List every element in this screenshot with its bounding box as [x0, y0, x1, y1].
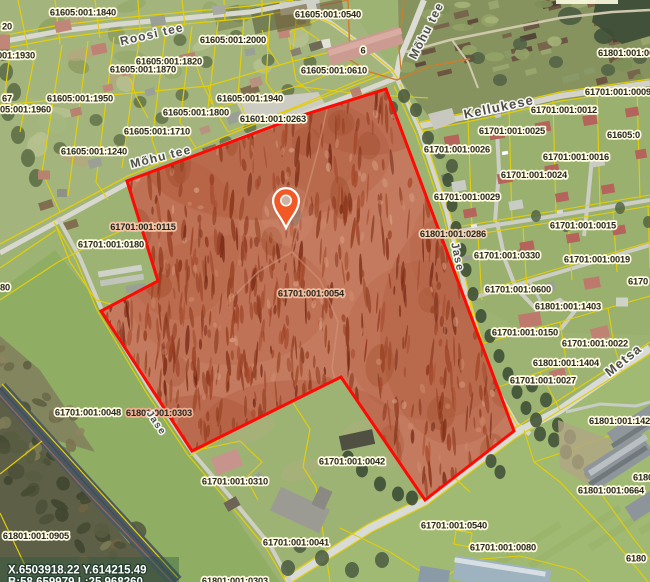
svg-text:61701:001:0540: 61701:001:0540 — [421, 520, 487, 530]
svg-text:61701:001:0080: 61701:001:0080 — [470, 542, 536, 552]
svg-text:61605:001:1940: 61605:001:1940 — [217, 93, 283, 103]
svg-text:6170: 6170 — [628, 276, 648, 286]
svg-text:61701:001:0026: 61701:001:0026 — [424, 144, 490, 154]
svg-text:61701:001:0180: 61701:001:0180 — [78, 239, 144, 249]
svg-text:61801:001:0012: 61801:001:0012 — [598, 48, 650, 58]
svg-text:61801:001:1403: 61801:001:1403 — [535, 301, 601, 311]
svg-text:61801:001:0303: 61801:001:0303 — [202, 576, 268, 582]
svg-text:B:58.659979 L:25.968260: B:58.659979 L:25.968260 — [8, 577, 143, 582]
svg-text:61801:001:0286: 61801:001:0286 — [420, 229, 486, 239]
svg-text:6180: 6180 — [626, 553, 646, 563]
svg-text:61801:001:0664: 61801:001:0664 — [578, 485, 645, 495]
svg-text:61701:001:0029: 61701:001:0029 — [434, 192, 500, 202]
svg-text:61701:001:0048: 61701:001:0048 — [55, 407, 121, 417]
svg-text:61801:001:142: 61801:001:142 — [589, 416, 650, 426]
svg-text:61701:001:0009: 61701:001:0009 — [585, 87, 650, 97]
svg-text:61801:001:0905: 61801:001:0905 — [3, 531, 69, 541]
svg-text:6: 6 — [360, 45, 365, 55]
svg-text:61701:001:0115: 61701:001:0115 — [110, 222, 176, 232]
svg-text:61605:001:2000: 61605:001:2000 — [200, 35, 266, 45]
svg-text:61605:001:0540: 61605:001:0540 — [295, 9, 361, 19]
svg-text:61605:001:1950: 61605:001:1950 — [47, 93, 113, 103]
svg-text:61605:001:1840: 61605:001:1840 — [50, 7, 116, 17]
svg-text:61605:0: 61605:0 — [607, 130, 640, 140]
svg-text:61701:001:0600: 61701:001:0600 — [485, 284, 551, 294]
svg-text:61701:001:0150: 61701:001:0150 — [492, 327, 558, 337]
svg-text:61701:001:0054: 61701:001:0054 — [278, 288, 345, 298]
svg-text:61605:001:0610: 61605:001:0610 — [301, 65, 367, 75]
svg-text:67: 67 — [2, 93, 12, 103]
svg-text:6180: 6180 — [633, 472, 650, 482]
svg-text:61605:001:1870: 61605:001:1870 — [110, 64, 176, 74]
svg-text:61701:001:0041: 61701:001:0041 — [263, 537, 329, 547]
svg-text:61701:001:0012: 61701:001:0012 — [531, 105, 597, 115]
svg-text:61701:001:0019: 61701:001:0019 — [564, 254, 630, 264]
svg-text:X.6503918.22 Y.614215.49: X.6503918.22 Y.614215.49 — [8, 565, 147, 577]
svg-text:61601:001:0263: 61601:001:0263 — [240, 114, 306, 124]
svg-text:61605:001:1930: 61605:001:1930 — [0, 50, 35, 60]
svg-text:61701:001:0330: 61701:001:0330 — [474, 250, 540, 260]
svg-text:61801:001:1404: 61801:001:1404 — [533, 358, 600, 368]
svg-text:61605:001:1960: 61605:001:1960 — [0, 104, 51, 114]
svg-text:61701:001:0027: 61701:001:0027 — [510, 375, 576, 385]
svg-text:61701:001:0016: 61701:001:0016 — [543, 152, 609, 162]
svg-text:61605:001:1710: 61605:001:1710 — [124, 126, 190, 136]
svg-text:61701:001:0015: 61701:001:0015 — [550, 220, 616, 230]
svg-text:20: 20 — [2, 21, 12, 31]
svg-text:61701:001:0022: 61701:001:0022 — [562, 338, 628, 348]
svg-text:61701:001:0024: 61701:001:0024 — [501, 170, 568, 180]
svg-text:61701:001:0042: 61701:001:0042 — [319, 456, 385, 466]
svg-text:61701:001:0310: 61701:001:0310 — [202, 476, 268, 486]
svg-text:61605:001:1240: 61605:001:1240 — [61, 146, 127, 156]
svg-text:61701:001:0025: 61701:001:0025 — [479, 126, 545, 136]
svg-text:61605:001:1800: 61605:001:1800 — [163, 107, 229, 117]
svg-text:80: 80 — [0, 282, 10, 292]
